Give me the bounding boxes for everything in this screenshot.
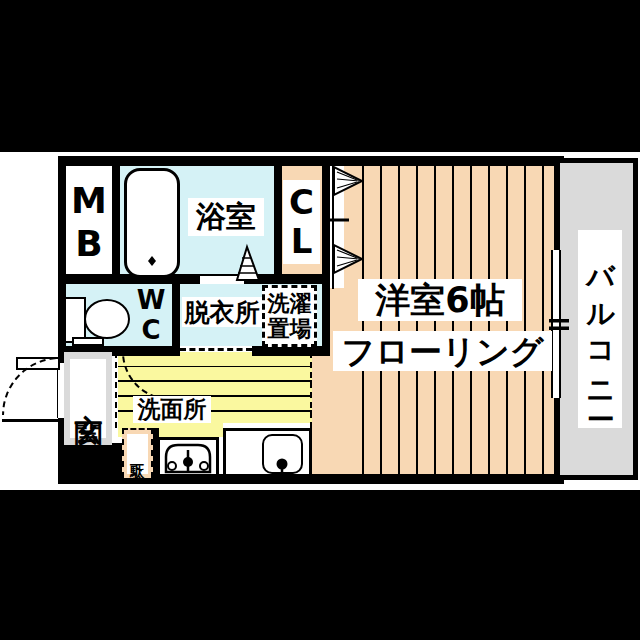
floor-plan-image: 洗濯 置場 玄関 下駄 M B 浴室 C L W C 脱衣所 洗面所 洋室6帖 …	[0, 0, 640, 640]
fixture-icons-overlay	[0, 0, 640, 640]
bathtub-drain-icon	[148, 256, 156, 266]
washer-faucet-icon	[277, 459, 288, 478]
bath-door-icon	[237, 247, 259, 280]
closet-door-icon	[325, 166, 362, 289]
window-mark-icon	[549, 319, 569, 330]
sink-icon	[166, 445, 210, 473]
